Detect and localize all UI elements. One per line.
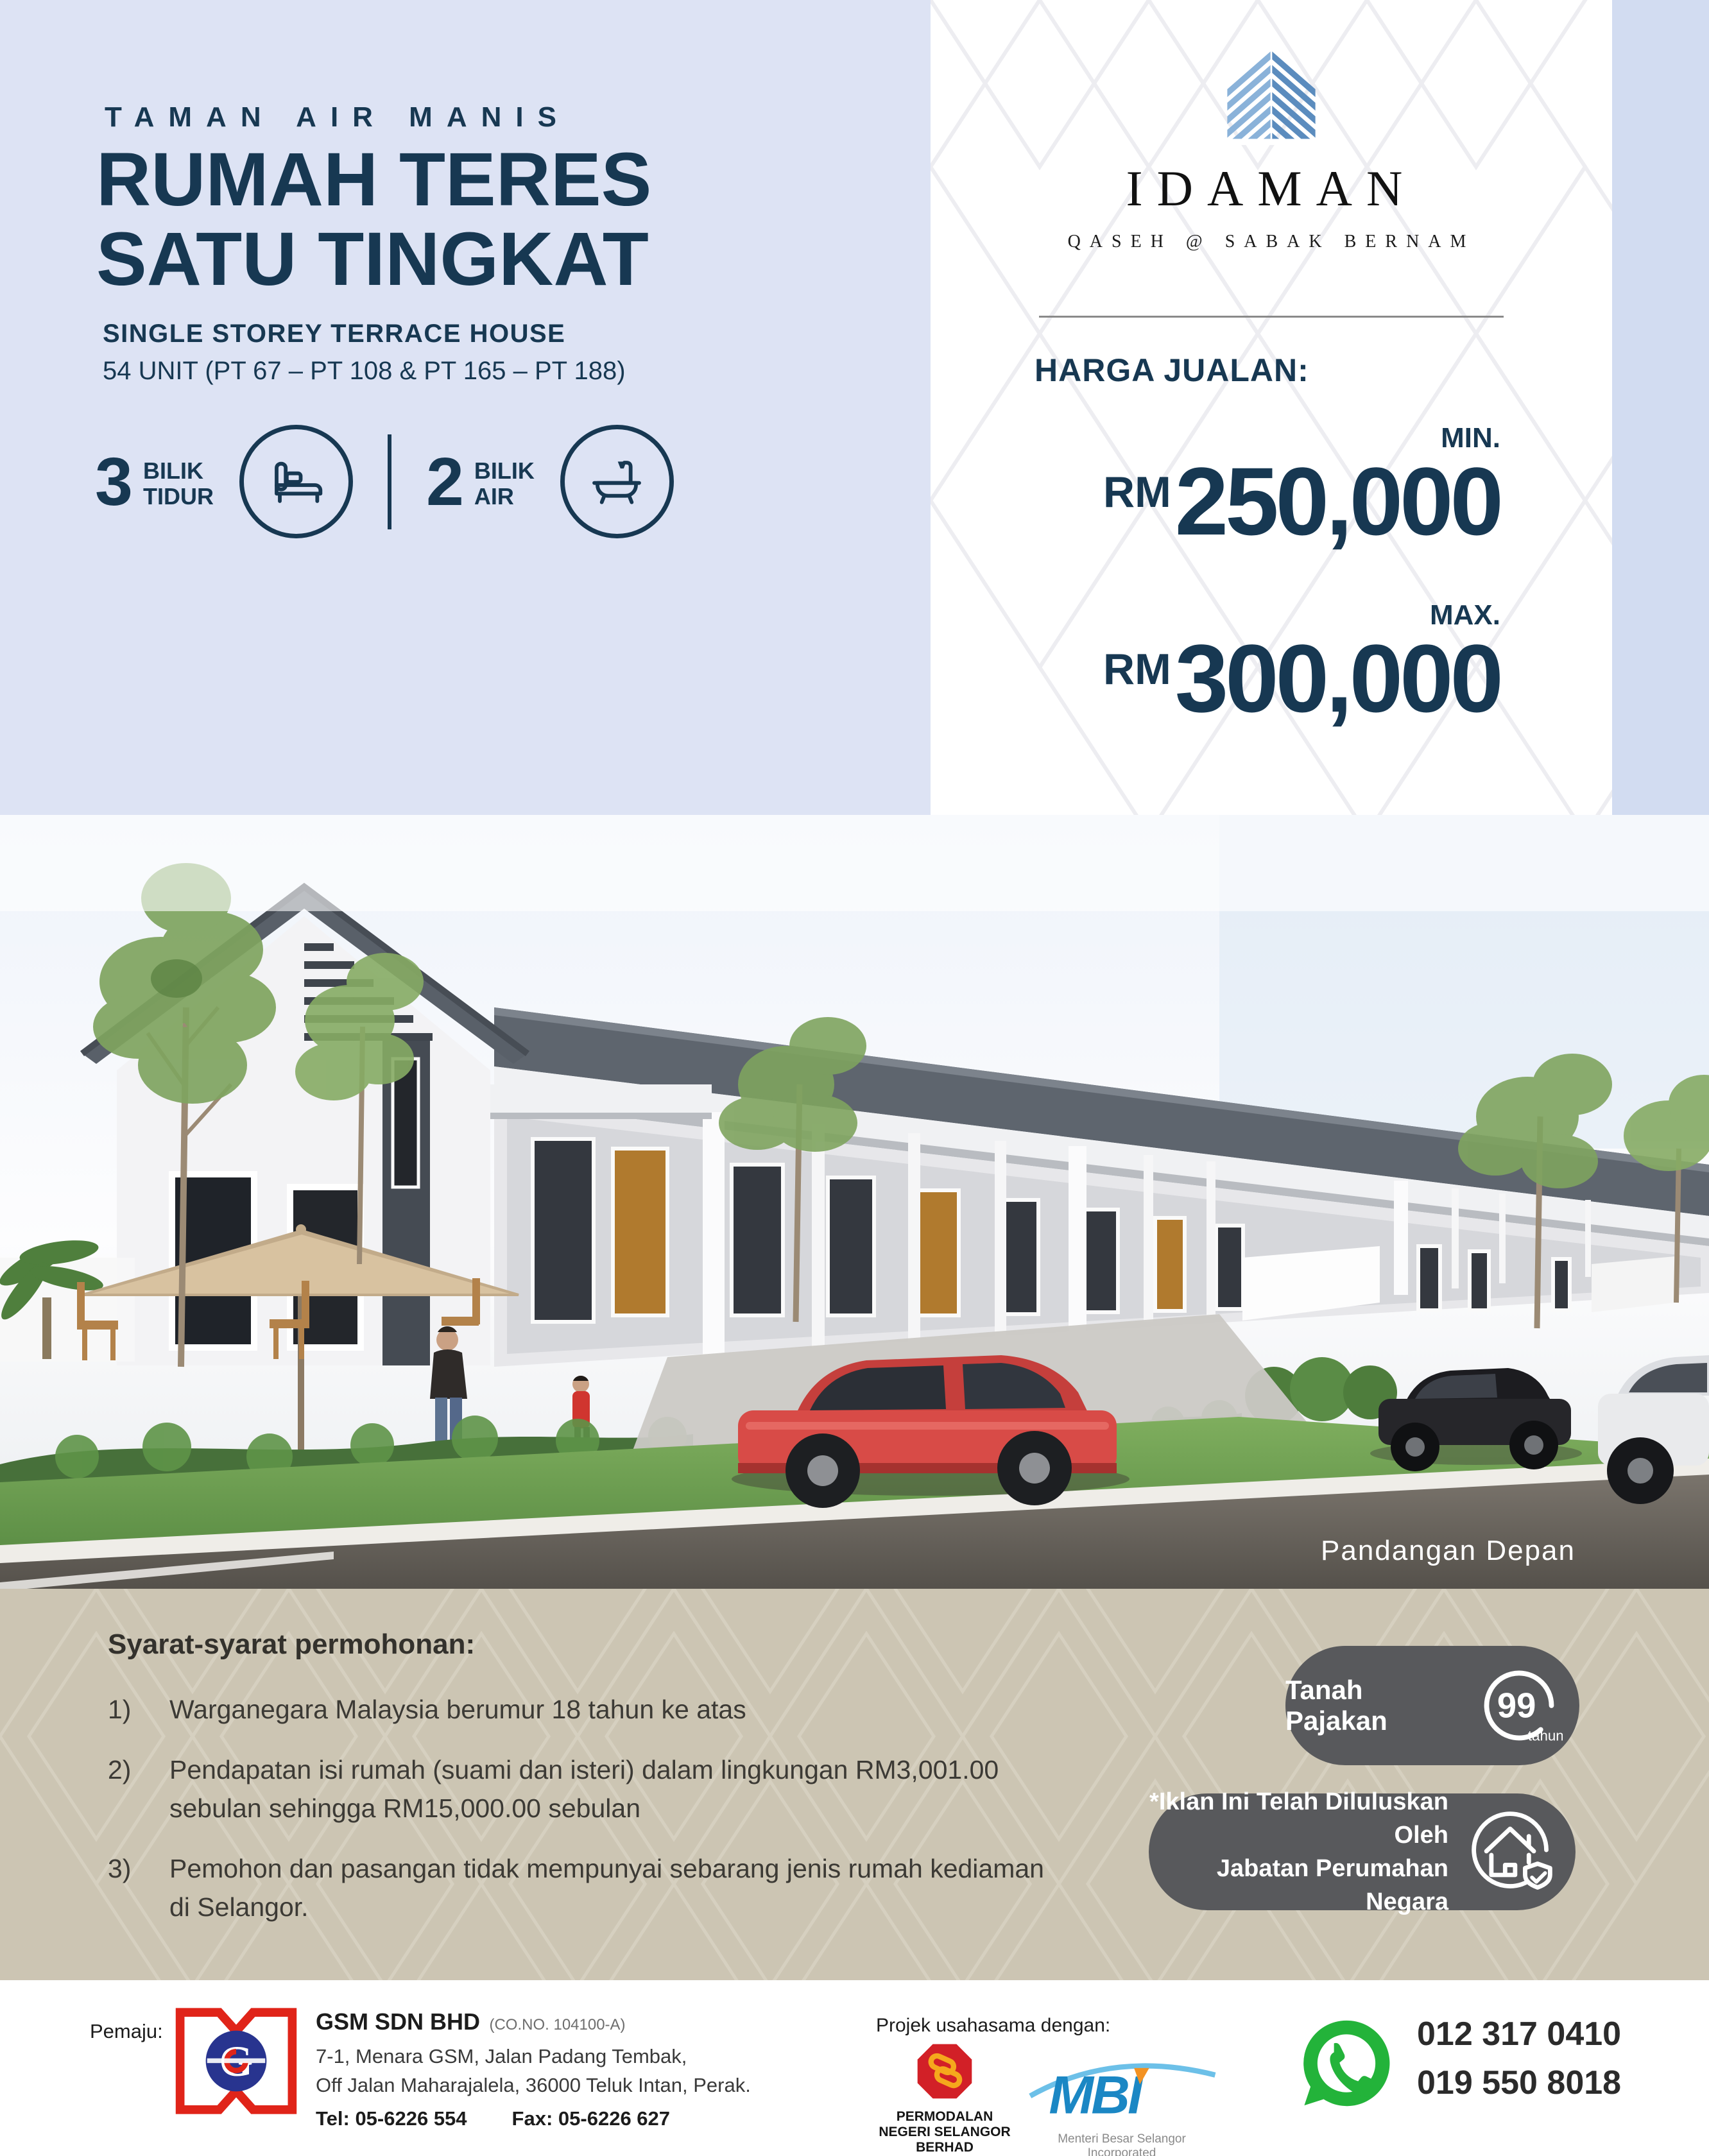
developer-fax: 05-6226 627 (558, 2107, 670, 2130)
subtitle: SINGLE STOREY TERRACE HOUSE (103, 320, 565, 348)
front-elevation-render: Pandangan Depan (0, 815, 1709, 1589)
99-years-circle-icon: 99 tahun (1475, 1662, 1563, 1749)
bathroom-count: 2 (426, 448, 464, 516)
mbi-tagline: Menteri Besar Selangor Incorporated (1026, 2132, 1218, 2156)
pnsb-logo: PERMODALAN NEGERI SELANGOR BERHAD 199001… (872, 2042, 1018, 2156)
svg-text:tahun: tahun (1528, 1727, 1563, 1743)
partners-label: Projek usahasama dengan: (876, 2015, 1110, 2037)
brand-name: IDAMAN (931, 160, 1612, 218)
max-price: RM 300,000 (1035, 630, 1500, 726)
leasehold-badge: Tanah Pajakan 99 tahun (1285, 1646, 1579, 1765)
developer-name: GSM SDN BHD (316, 2008, 480, 2035)
developer-details: GSM SDN BHD (CO.NO. 104100-A) 7-1, Menar… (316, 2008, 751, 2130)
page-title-line1: RUMAH TERES (96, 140, 651, 219)
whatsapp-icon (1291, 2012, 1402, 2126)
terms-heading: Syarat-syarat permohonan: (108, 1629, 475, 1661)
min-value: 250,000 (1175, 453, 1500, 549)
brand-divider-rule (1039, 316, 1504, 318)
price-heading: HARGA JUALAN: (1035, 352, 1309, 389)
feature-divider (388, 434, 391, 529)
brand-block: IDAMAN QASEH @ SABAK BERNAM (931, 42, 1612, 252)
developer-phone-row: Tel: 05-6226 554 Fax: 05-6226 627 (316, 2107, 751, 2130)
right-accent-strip (1612, 0, 1709, 815)
contact-phones: 012 317 0410 019 550 8018 (1417, 2010, 1621, 2107)
approval-text: *Iklan Ini Telah Diluluskan Oleh Jabatan… (1149, 1785, 1448, 1919)
bathroom-label: BILIK AIR (474, 458, 535, 509)
term-item: 2) Pendapatan isi rumah (suami dan ister… (108, 1750, 1109, 1827)
unit-count: 54 UNIT (PT 67 – PT 108 & PT 165 – PT 18… (103, 357, 626, 386)
phone-2: 019 550 8018 (1417, 2058, 1621, 2107)
min-currency: RM (1103, 467, 1171, 517)
leasehold-label: Tanah Pajakan (1285, 1675, 1459, 1736)
svg-text:99: 99 (1497, 1686, 1536, 1725)
render-caption: Pandangan Depan (1321, 1535, 1576, 1567)
bedroom-count: 3 (95, 448, 133, 516)
house-shield-icon (1465, 1805, 1559, 1899)
min-price: RM 250,000 (1035, 453, 1500, 549)
estate-name: TAMAN AIR MANIS (105, 101, 571, 133)
top-section: TAMAN AIR MANIS RUMAH TERES SATU TINGKAT… (0, 0, 1709, 815)
gsm-logo: G (172, 2006, 300, 2119)
developer-label: Pemaju: (90, 2020, 163, 2043)
pnsb-name: PERMODALAN NEGERI SELANGOR BERHAD (872, 2109, 1018, 2155)
terms-list: 1) Warganegara Malaysia berumur 18 tahun… (108, 1690, 1109, 1948)
developer-co-no: (CO.NO. 104100-A) (489, 2016, 625, 2033)
bedroom-label: BILIK TIDUR (143, 458, 214, 509)
developer-address2: Off Jalan Maharajalela, 36000 Teluk Inta… (316, 2074, 751, 2096)
terms-section: Syarat-syarat permohonan: 1) Warganegara… (0, 1589, 1709, 1980)
bath-icon (560, 425, 674, 538)
feature-row: 3 BILIK TIDUR 2 BILIK AIR (95, 425, 674, 538)
property-flyer: TAMAN AIR MANIS RUMAH TERES SATU TINGKAT… (0, 0, 1709, 2156)
term-item: 1) Warganegara Malaysia berumur 18 tahun… (108, 1690, 1109, 1729)
mbi-logo: MBI Menteri Besar Selangor Incorporated (1026, 2057, 1218, 2156)
bed-icon (239, 425, 353, 538)
phone-1: 012 317 0410 (1417, 2010, 1621, 2058)
approval-badge: *Iklan Ini Telah Diluluskan Oleh Jabatan… (1149, 1793, 1576, 1910)
max-value: 300,000 (1175, 630, 1500, 726)
developer-tel: 05-6226 554 (355, 2107, 467, 2130)
max-currency: RM (1103, 644, 1171, 694)
developer-address1: 7-1, Menara GSM, Jalan Padang Tembak, (316, 2045, 687, 2067)
page-title-line2: SATU TINGKAT (96, 219, 649, 299)
brand-tagline: QASEH @ SABAK BERNAM (931, 232, 1612, 252)
svg-text:MBI: MBI (1049, 2065, 1144, 2125)
term-item: 3) Pemohon dan pasangan tidak mempunyai … (108, 1849, 1109, 1926)
footer: Pemaju: G GSM SDN BHD (CO.NO. 104100-A) … (0, 1980, 1709, 2156)
chevron-house-icon (1215, 42, 1328, 145)
